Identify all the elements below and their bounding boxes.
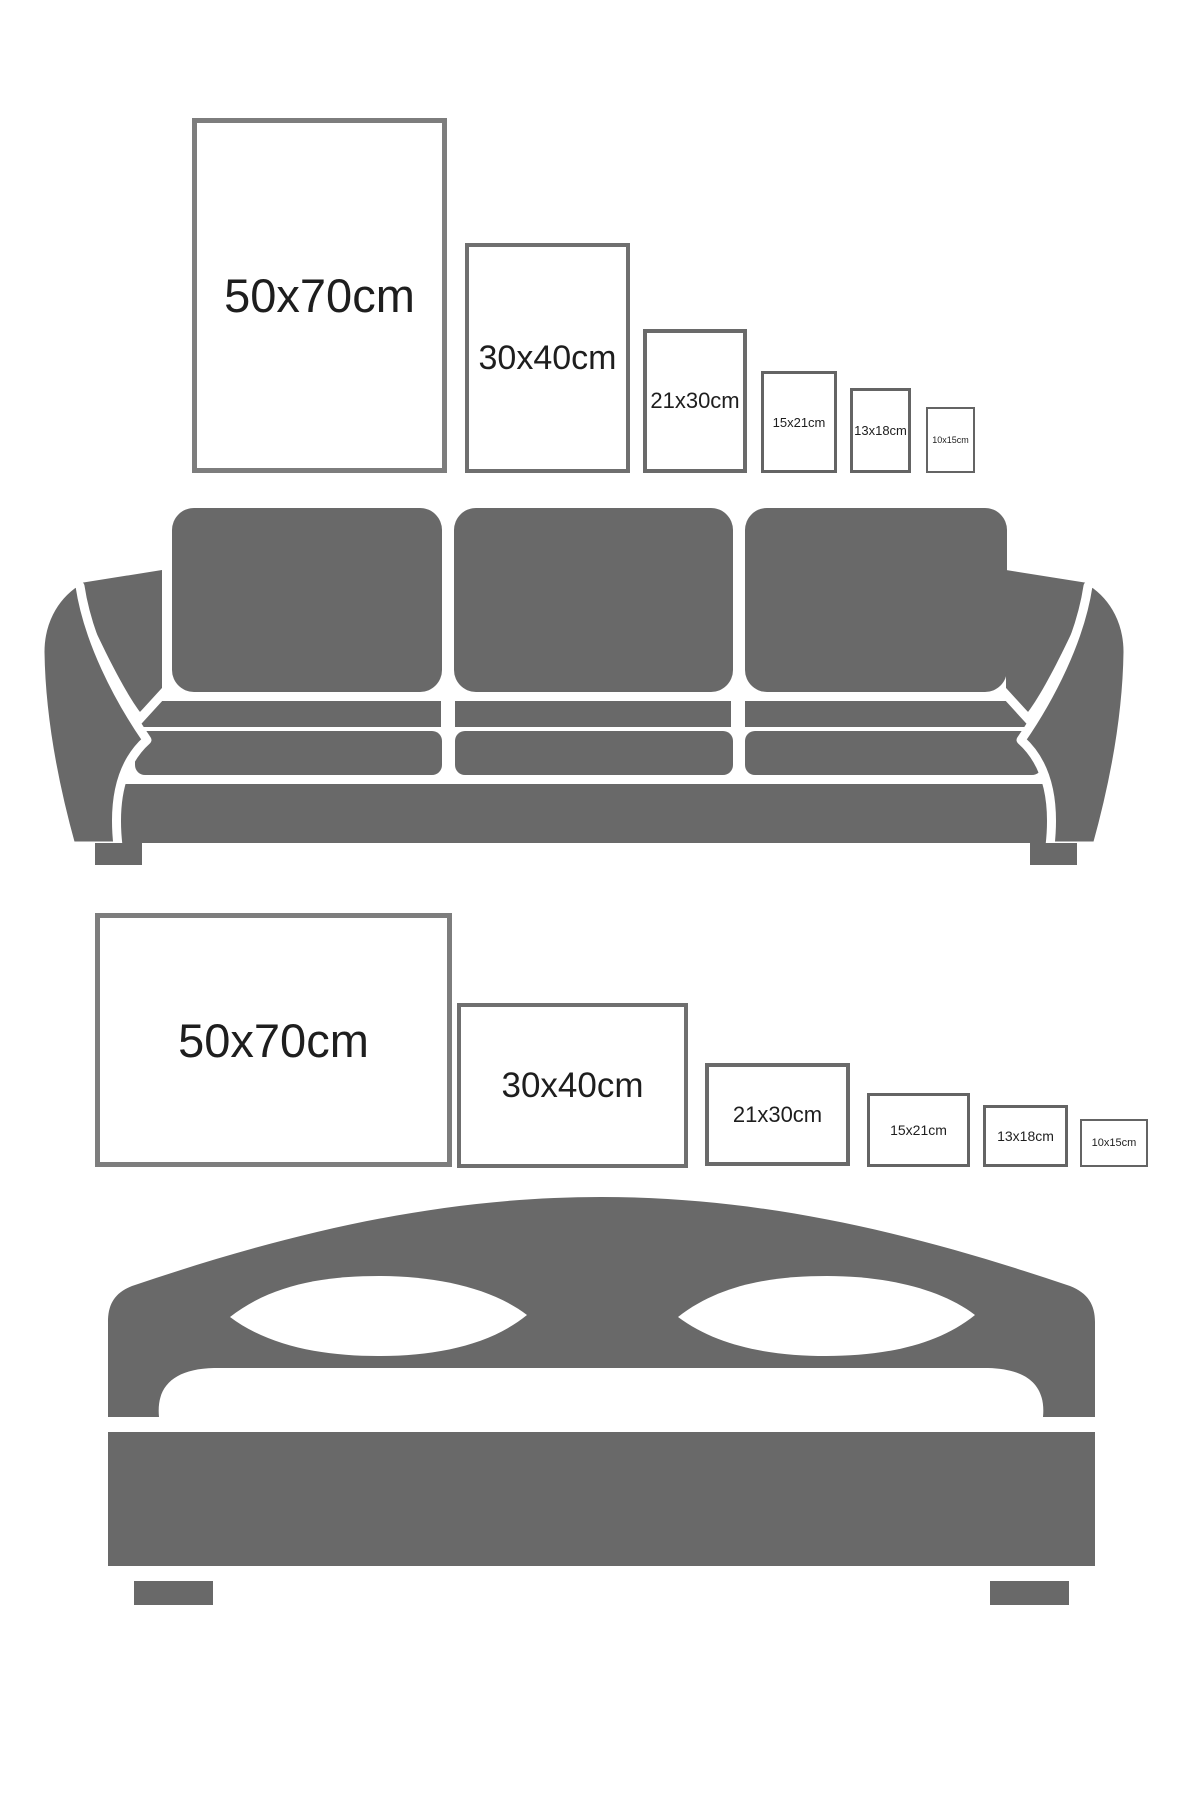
size-guide-infographic: 50x70cm 30x40cm 21x30cm 15x21cm 13x18cm … bbox=[0, 0, 1200, 1800]
size-label-15x21: 15x21cm bbox=[890, 1123, 947, 1137]
sofa-base bbox=[82, 784, 1100, 843]
size-frame-landscape-50x70: 50x70cm bbox=[95, 913, 452, 1167]
sofa-illustration bbox=[0, 470, 1200, 870]
size-frame-portrait-21x30: 21x30cm bbox=[643, 329, 747, 473]
sofa-back-cushion bbox=[172, 508, 442, 692]
bed-base bbox=[108, 1432, 1095, 1566]
size-label-10x15: 10x15cm bbox=[932, 436, 969, 445]
sofa-seat-cushion bbox=[135, 731, 442, 775]
size-label-15x21: 15x21cm bbox=[773, 416, 826, 429]
sofa-seat-deck bbox=[136, 701, 1032, 727]
size-label-13x18: 13x18cm bbox=[854, 424, 907, 437]
sofa-cushion-divider bbox=[731, 692, 745, 732]
size-label-13x18: 13x18cm bbox=[997, 1129, 1054, 1143]
size-label-21x30: 21x30cm bbox=[733, 1104, 822, 1126]
bed-leg bbox=[990, 1581, 1069, 1605]
size-label-50x70: 50x70cm bbox=[224, 272, 415, 319]
size-frame-landscape-30x40: 30x40cm bbox=[457, 1003, 688, 1168]
size-frame-landscape-10x15: 10x15cm bbox=[1080, 1119, 1148, 1167]
size-label-21x30: 21x30cm bbox=[650, 390, 739, 412]
size-frame-landscape-13x18: 13x18cm bbox=[983, 1105, 1068, 1167]
size-frame-portrait-10x15: 10x15cm bbox=[926, 407, 975, 473]
sofa-back-cushion bbox=[454, 508, 733, 692]
size-frame-portrait-15x21: 15x21cm bbox=[761, 371, 837, 473]
size-frame-portrait-50x70: 50x70cm bbox=[192, 118, 447, 473]
size-frame-portrait-13x18: 13x18cm bbox=[850, 388, 911, 473]
size-label-10x15: 10x15cm bbox=[1092, 1138, 1137, 1149]
sofa-seat-cushion bbox=[745, 731, 1042, 775]
size-frame-portrait-30x40: 30x40cm bbox=[465, 243, 630, 473]
sofa-cushion-divider bbox=[441, 692, 455, 732]
size-label-30x40: 30x40cm bbox=[501, 1068, 643, 1103]
sofa-leg bbox=[1030, 843, 1077, 865]
sofa-seat-cushion bbox=[455, 731, 733, 775]
sofa-leg bbox=[95, 843, 142, 865]
size-frame-landscape-21x30: 21x30cm bbox=[705, 1063, 850, 1166]
size-label-50x70: 50x70cm bbox=[178, 1017, 369, 1064]
sofa-back-cushion bbox=[745, 508, 1007, 692]
size-frame-landscape-15x21: 15x21cm bbox=[867, 1093, 970, 1167]
bed-illustration bbox=[0, 1180, 1200, 1610]
bed-leg bbox=[134, 1581, 213, 1605]
size-label-30x40: 30x40cm bbox=[479, 341, 617, 375]
